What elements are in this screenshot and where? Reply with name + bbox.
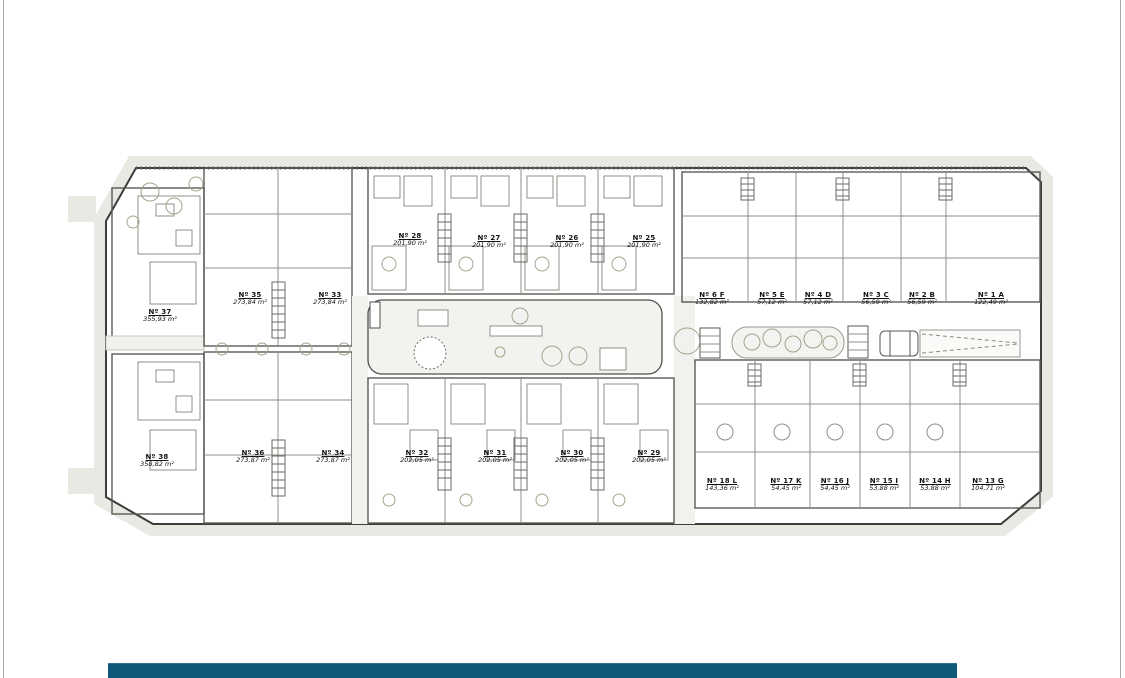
unit-area: 273,87 m² — [301, 457, 365, 465]
unit-label-30: Nº 30202,05 m² — [540, 449, 604, 465]
unit-label-31: Nº 31202,05 m² — [463, 449, 527, 465]
unit-label-37: Nº 37355,93 m² — [128, 308, 192, 324]
unit-area: 201,90 m² — [612, 242, 676, 250]
path-corridor-left — [352, 296, 368, 524]
unit-area: 143,36 m² — [690, 485, 754, 493]
unit-area: 104,71 m² — [956, 485, 1020, 493]
unit-area: 201,90 m² — [535, 242, 599, 250]
unit-area: 122,49 m² — [959, 299, 1023, 307]
unit-area: 56,59 m² — [890, 299, 954, 307]
driveway-ramp — [920, 330, 1020, 357]
unit-area: 273,84 m² — [218, 299, 282, 307]
unit-label-34: Nº 34273,87 m² — [301, 449, 365, 465]
unit-label-29: Nº 29202,05 m² — [617, 449, 681, 465]
unit-area: 201,90 m² — [378, 240, 442, 248]
drawing-sheet: Nº 37355,93 m² Nº 38358,82 m² Nº 35273,8… — [0, 0, 1125, 678]
unit-label-36: Nº 36273,87 m² — [221, 449, 285, 465]
unit-label-32: Nº 32202,05 m² — [385, 449, 449, 465]
unit-label-38: Nº 38358,82 m² — [125, 453, 189, 469]
unit-area: 273,84 m² — [298, 299, 362, 307]
unit-area: 202,05 m² — [617, 457, 681, 465]
unit-label-28: Nº 28201,90 m² — [378, 232, 442, 248]
unit-area: 202,05 m² — [540, 457, 604, 465]
site-plan — [0, 0, 1125, 678]
unit-label-33: Nº 33273,84 m² — [298, 291, 362, 307]
unit-label-4d: Nº 4 D57,12 m² — [786, 291, 850, 307]
courtyard — [368, 300, 662, 374]
unit-area: 201,90 m² — [457, 242, 521, 250]
pool — [414, 337, 446, 369]
unit-label-35: Nº 35273,84 m² — [218, 291, 282, 307]
unit-label-6f: Nº 6 F132,82 m² — [680, 291, 744, 307]
unit-area: 358,82 m² — [125, 461, 189, 469]
unit-label-13g: Nº 13 G104,71 m² — [956, 477, 1020, 493]
unit-area: 355,93 m² — [128, 316, 192, 324]
unit-label-25: Nº 25201,90 m² — [612, 234, 676, 250]
unit-label-27: Nº 27201,90 m² — [457, 234, 521, 250]
unit-area: 202,05 m² — [463, 457, 527, 465]
footer-accent-bar — [108, 663, 957, 678]
unit-area: 202,05 m² — [385, 457, 449, 465]
unit-area: 57,12 m² — [786, 299, 850, 307]
unit-label-2b: Nº 2 B56,59 m² — [890, 291, 954, 307]
unit-label-18l: Nº 18 L143,36 m² — [690, 477, 754, 493]
unit-label-1a: Nº 1 A122,49 m² — [959, 291, 1023, 307]
unit-area: 132,82 m² — [680, 299, 744, 307]
unit-area: 273,87 m² — [221, 457, 285, 465]
unit-label-26: Nº 26201,90 m² — [535, 234, 599, 250]
